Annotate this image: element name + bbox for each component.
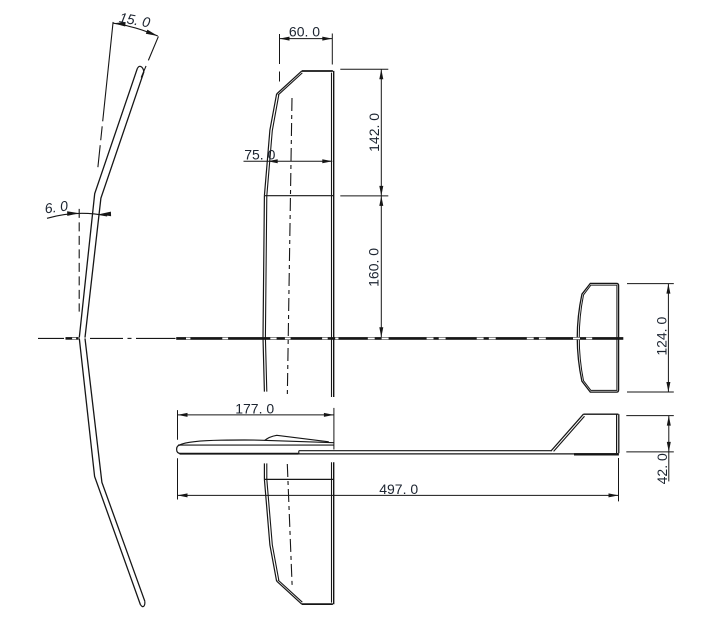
svg-text:124. 0: 124. 0 (653, 317, 669, 356)
svg-text:142. 0: 142. 0 (366, 113, 382, 152)
svg-text:6. 0: 6. 0 (44, 197, 70, 216)
svg-text:42. 0: 42. 0 (654, 453, 670, 484)
svg-text:497. 0: 497. 0 (379, 481, 418, 497)
svg-text:177. 0: 177. 0 (235, 400, 274, 416)
svg-text:60. 0: 60. 0 (289, 23, 320, 39)
svg-text:75. 0: 75. 0 (244, 146, 275, 162)
svg-text:160. 0: 160. 0 (365, 248, 381, 287)
